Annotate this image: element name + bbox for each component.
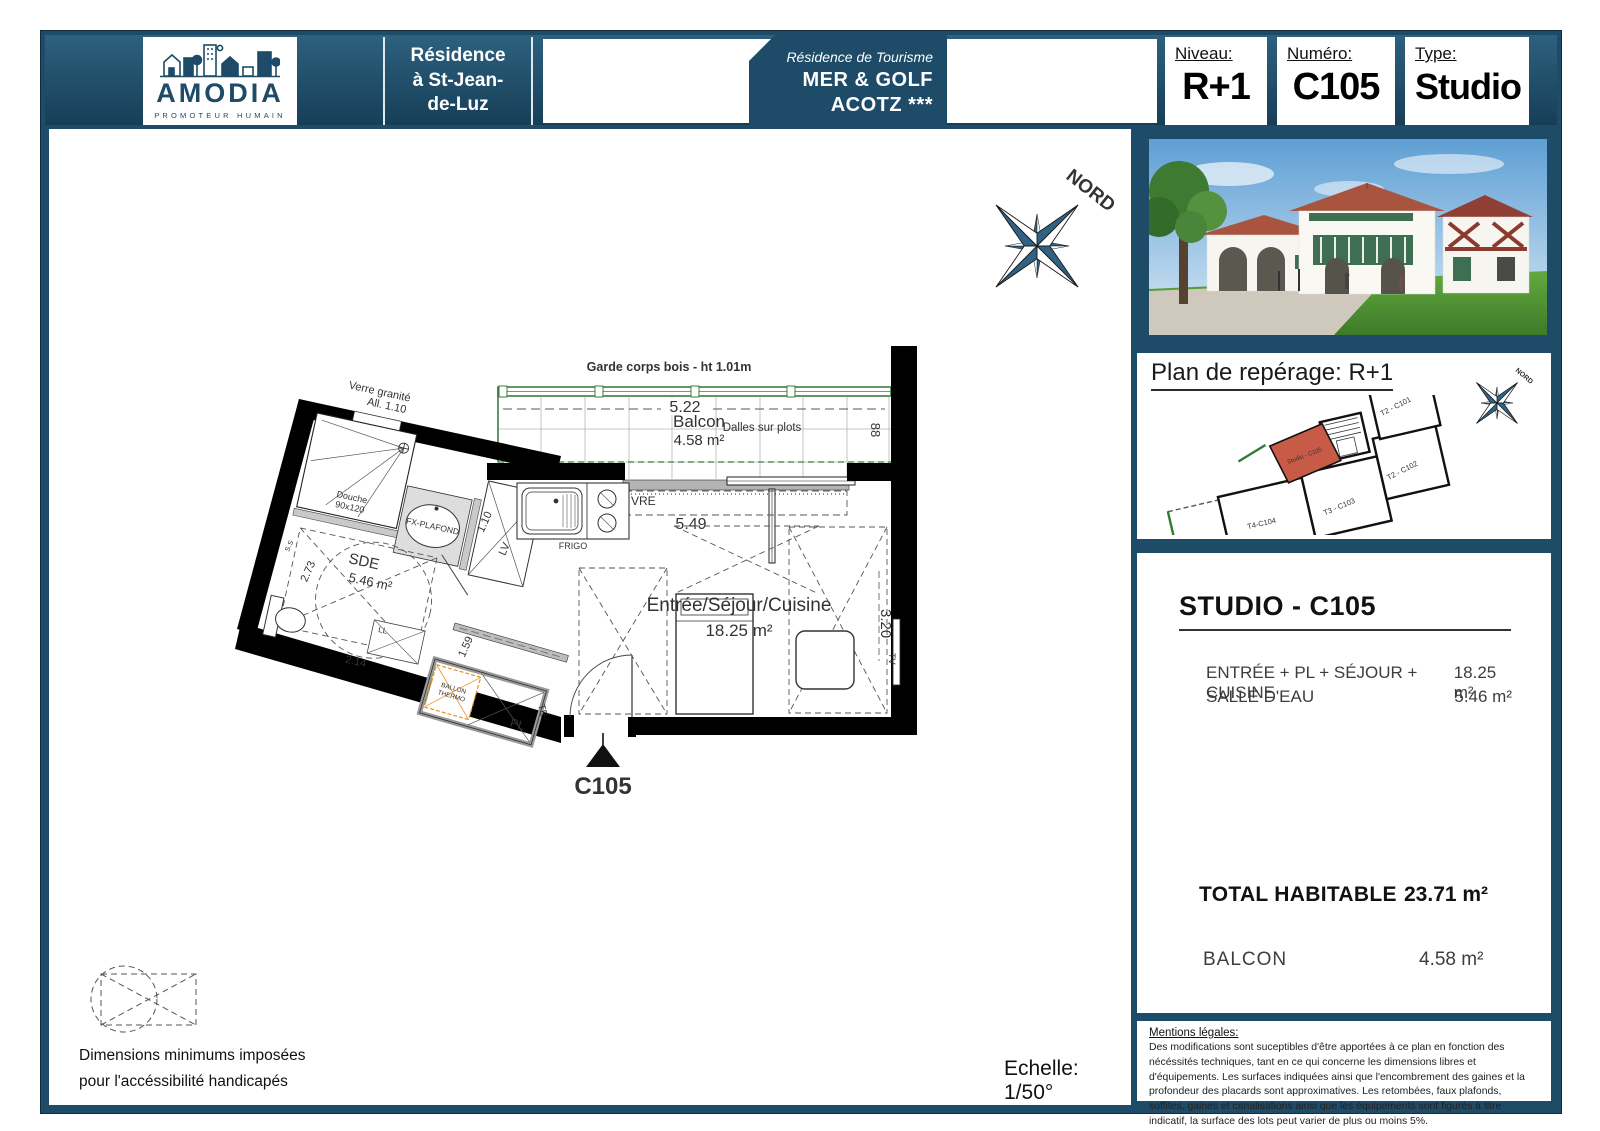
ss-label: S.S (284, 539, 295, 552)
tourism-line2: MER & GOLF (749, 68, 933, 93)
entrance-marker: C105 (574, 733, 631, 800)
main-room-label: Entrée/Séjour/Cuisine (647, 595, 832, 616)
sde-area: 5.46 m² (347, 570, 394, 594)
details-underline (1179, 629, 1511, 631)
legal-title: Mentions légales: (1149, 1027, 1539, 1039)
balcony-area: 4.58 m² (674, 432, 725, 449)
total-label: TOTAL HABITABLE (1199, 883, 1397, 907)
niveau-label: Niveau: (1175, 44, 1257, 64)
field-type: Type: Studio (1405, 37, 1529, 125)
balcony-label: Balcon (673, 412, 725, 431)
type-value: Studio (1415, 66, 1519, 108)
accessibility-note-1: Dimensions minimums imposées (79, 1047, 306, 1065)
type-label: Type: (1415, 44, 1519, 64)
detail-row-bath: SALLE D'EAU 5.46 m² (1206, 687, 1512, 707)
balcony-row-label: BALCON (1203, 949, 1287, 971)
kitchen: FRIGO (517, 483, 629, 551)
tourism-banner: Résidence de Tourisme MER & GOLF ACOTZ *… (749, 35, 947, 127)
accessibility-note-2: pour l'accéssibilité handicapés (79, 1073, 288, 1091)
location-plan-title: Plan de repérage: R+1 (1151, 359, 1393, 391)
compass-rose: NORD (979, 144, 1119, 319)
plan-sheet: AMODIA PROMOTEUR HUMAIN Résidence à St-J… (0, 0, 1600, 1131)
tourism-line3: ACOTZ *** (749, 93, 933, 118)
north-label: NORD (1062, 165, 1119, 216)
floorplan-drawing: Garde corps bois - ht 1.01m 5.22 Balcon … (229, 331, 929, 806)
numero-label: Numéro: (1287, 44, 1385, 64)
vre-label: VRE (631, 494, 656, 508)
ll-box: LL (367, 620, 425, 664)
brand-name: AMODIA (156, 80, 284, 107)
unit-details-panel: STUDIO - C105 ENTRÉE + PL + SÉJOUR + CUI… (1137, 553, 1551, 1013)
sidebar: Plan de repérage: R+1 NORD (1133, 129, 1555, 1105)
room-depth-dim: 3.20 (877, 609, 894, 638)
total-value: 23.71 m² (1404, 883, 1488, 907)
railing-note: Garde corps bois - ht 1.01m (587, 360, 752, 374)
dim-159: 1.59 (456, 635, 476, 659)
residence-location: Résidence à St-Jean- de-Luz (383, 37, 533, 125)
scale-note: Echelle: 1/50° (1004, 1057, 1131, 1105)
mini-floorplan: Studio - C105 T4-C104 T3 - C103 T2 - C10… (1155, 395, 1485, 535)
legal-body: Des modifications sont suceptibles d'êtr… (1149, 1041, 1539, 1130)
balcony-row-value: 4.58 m² (1419, 949, 1483, 971)
unit-number: C105 (574, 773, 631, 800)
detail-label: SALLE D'EAU (1206, 687, 1314, 707)
header-band: AMODIA PROMOTEUR HUMAIN Résidence à St-J… (45, 35, 1557, 125)
tourism-line1: Résidence de Tourisme (749, 49, 933, 65)
amodia-logo: AMODIA PROMOTEUR HUMAIN (143, 37, 297, 125)
slab-note: Dalles sur plots (723, 422, 802, 434)
legal-panel: Mentions légales: Des modifications sont… (1137, 1021, 1551, 1101)
main-room: TV 3.20 Entrée/Séjour/Cuisine 18.25 m² (579, 526, 900, 714)
dim-273: 2.73 (299, 559, 319, 583)
room-width-dim: 5.49 (675, 516, 706, 533)
document-frame: AMODIA PROMOTEUR HUMAIN Résidence à St-J… (40, 30, 1562, 1114)
details-title: STUDIO - C105 (1179, 591, 1376, 622)
numero-value: C105 (1287, 66, 1385, 109)
location-plan-panel: Plan de repérage: R+1 NORD (1137, 353, 1551, 539)
field-niveau: Niveau: R+1 (1165, 37, 1267, 125)
building-photo (1149, 139, 1547, 335)
field-numero: Numéro: C105 (1277, 37, 1395, 125)
detail-value: 5.46 m² (1454, 687, 1512, 707)
table (796, 631, 854, 689)
sink (522, 488, 582, 534)
tv-label: TV (887, 653, 897, 665)
amodia-skyline-icon (160, 42, 280, 78)
frigo-label: FRIGO (559, 541, 588, 551)
floorplan-canvas: NORD (49, 129, 1131, 1105)
balcony-depth-dim: 88 (868, 423, 883, 437)
toilet (263, 595, 310, 642)
main-room-area: 18.25 m² (705, 621, 772, 640)
niveau-value: R+1 (1175, 66, 1257, 109)
brand-tagline: PROMOTEUR HUMAIN (154, 111, 286, 120)
